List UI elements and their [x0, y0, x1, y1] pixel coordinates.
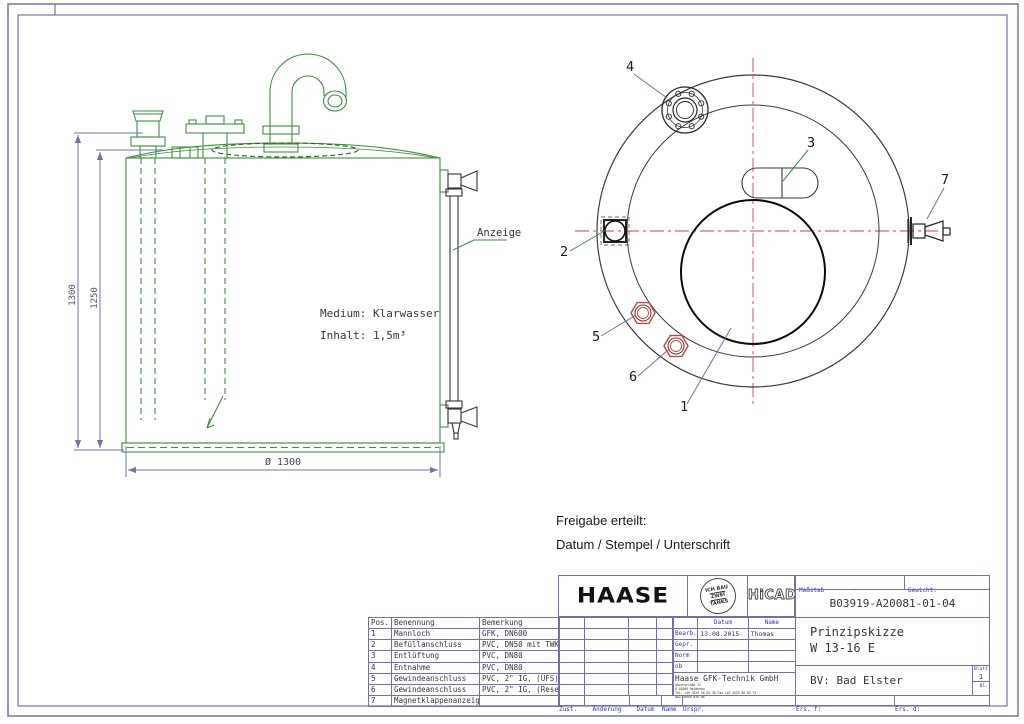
callout-5: 5 [592, 329, 600, 345]
drawing-number-cell: B03919-A20081-01-04 [795, 589, 990, 618]
urspr-cell: Urspr. [682, 695, 796, 706]
threaded-boss-ufs [631, 303, 655, 324]
release-note-line1: Freigabe erteilt: [556, 513, 646, 528]
bl-label: Bl. [973, 681, 989, 690]
dimensions [74, 133, 440, 477]
part-remark: PVC, DN80 [480, 651, 560, 662]
part-name: Gewindeanschluss [392, 673, 480, 684]
part-pos: 7 [369, 695, 392, 706]
tank-lid [126, 143, 440, 158]
callout-4: 4 [626, 59, 634, 75]
urspr-label: Urspr. [683, 706, 705, 713]
blatt-cell: Blatt 1 Bl. [972, 665, 990, 696]
ers-f-label: Ers. f: [796, 706, 821, 713]
release-note-line2: Datum / Stempel / Unterschrift [556, 537, 730, 552]
personnel-table: Datum Name Bearb. 13.08.2015 Thomas Gepr… [672, 617, 796, 673]
company-box: Haase GFK-Technik GmbH Ahornstraße 12 D … [672, 672, 796, 696]
parts-header-pos: Pos. [369, 618, 392, 629]
aenderung-cell: Änderung [584, 695, 630, 706]
ers-f-cell: Ers. f: [795, 695, 895, 706]
part-remark: PVC, DN80 [480, 662, 560, 673]
aenderung-label: Änderung [593, 706, 622, 713]
personnel-label: Bearb. [673, 629, 698, 640]
gauge-label: Anzeige [477, 227, 521, 239]
part-remark: PVC, 2" IG, (ÜFS) [480, 673, 560, 684]
parts-list: Pos. Benennung Bemerkung 1 Mannloch GFK,… [368, 617, 559, 707]
ers-d-label: Ers. d: [895, 706, 920, 713]
part-remark [480, 695, 560, 706]
callout-3: 3 [807, 135, 815, 151]
dim-body-height: 1250 [90, 287, 100, 309]
inhalt-annotation: Inhalt: 1,5m³ [320, 329, 406, 342]
drawing-subtitle: W 13-16 E [810, 640, 989, 656]
parts-row: 5 Gewindeanschluss PVC, 2" IG, (ÜFS) [369, 673, 560, 684]
personnel-label: ob [673, 662, 698, 673]
parts-row: 7 Magnetklappenanzeiger [369, 695, 560, 706]
part-name: Mannloch [392, 629, 480, 640]
part-pos: 5 [369, 673, 392, 684]
callout-7: 7 [941, 172, 949, 188]
zust-cell: Zust. [558, 695, 585, 706]
tank-side-view [122, 54, 448, 452]
datum-label: Datum [636, 706, 654, 713]
parts-row: 3 Entlüftung PVC, DN80 [369, 651, 560, 662]
fill-connection [131, 111, 165, 420]
part-name: Gewindeanschluss [392, 684, 480, 695]
name-label: Name [662, 706, 676, 713]
blatt-label: Blatt [973, 666, 989, 673]
tank-body [126, 158, 440, 443]
drawing-number: B03919-A20081-01-04 [830, 597, 956, 610]
level-gauge [446, 171, 477, 439]
parts-row: 2 Befüllanschluss PVC, DN50 mit TWK [369, 640, 560, 651]
ers-d-cell: Ers. d: [894, 695, 990, 706]
part-name: Entnahme [392, 662, 480, 673]
callout-6: 6 [629, 369, 637, 385]
parts-row: 6 Gewindeanschluss PVC, 2" IG, (Reserve) [369, 684, 560, 695]
hicad-logo: HiCAD [748, 576, 794, 616]
blatt-value: 1 [973, 673, 989, 681]
part-name: Befüllanschluss [392, 640, 480, 651]
personnel-datum: 13.08.2015 [698, 629, 748, 640]
manhole-side [212, 143, 358, 157]
gewicht-cell: Gewicht: [904, 575, 990, 590]
stamp-box: ICH BAU ZWEI TANKS [687, 575, 748, 617]
part-remark: GFK, DN600 [480, 629, 560, 640]
drawing-sheet: Anzeige Medium: Klarwasser Inhalt: 1,5m³… [0, 0, 1024, 724]
parts-header-bemerkung: Bemerkung [480, 618, 560, 629]
revision-grid [558, 617, 673, 696]
haase-logo-box: HAASE [558, 575, 688, 617]
bv-cell: BV: Bad Elster [795, 665, 973, 696]
hicad-logo-box: HiCAD [747, 575, 795, 617]
datum-cell: Datum [629, 695, 662, 706]
flanged-connection [186, 116, 244, 428]
part-pos: 4 [369, 662, 392, 673]
drawing-title-cell: Prinzipskizze W 13-16 E [795, 617, 990, 666]
callout-2: 2 [560, 244, 568, 260]
part-remark: PVC, DN50 mit TWK [480, 640, 560, 651]
parts-header-benennung: Benennung [392, 618, 480, 629]
part-pos: 2 [369, 640, 392, 651]
part-pos: 1 [369, 629, 392, 640]
zwei-tanks-stamp-icon: ICH BAU ZWEI TANKS [697, 575, 739, 617]
threaded-boss-reserve [664, 336, 688, 357]
parts-row: 4 Entnahme PVC, DN80 [369, 662, 560, 673]
company-name: Haase GFK-Technik GmbH [675, 674, 793, 683]
personnel-label: Norm [673, 651, 698, 662]
masstab-cell: Maßstab – [795, 575, 905, 590]
personnel-col-name: Name [748, 618, 795, 629]
haase-logo: HAASE [559, 578, 687, 615]
dim-total-height: 1300 [68, 284, 78, 306]
part-name: Entlüftung [392, 651, 480, 662]
part-pos: 3 [369, 651, 392, 662]
part-pos: 6 [369, 684, 392, 695]
gauge-leader-line [453, 240, 507, 250]
name-cell: Name [661, 695, 683, 706]
zust-label: Zust. [559, 706, 577, 713]
parts-row: 1 Mannloch GFK, DN600 [369, 629, 560, 640]
tank-top-view: 4 3 7 2 5 6 1 [560, 58, 950, 415]
drawing-title: Prinzipskizze [810, 624, 989, 640]
callout-1: 1 [680, 399, 688, 415]
vent-gooseneck [263, 54, 347, 152]
personnel-col-datum: Datum [698, 618, 748, 629]
personnel-name: Thomas [748, 629, 795, 640]
bv-value: BV: Bad Elster [810, 674, 903, 687]
medium-annotation: Medium: Klarwasser [320, 307, 440, 320]
part-name: Magnetklappenanzeiger [392, 695, 480, 706]
part-remark: PVC, 2" IG, (Reserve) [480, 684, 560, 695]
personnel-label: Gepr. [673, 640, 698, 651]
flange-port [662, 87, 708, 133]
dim-diameter: Ø 1300 [265, 456, 301, 468]
